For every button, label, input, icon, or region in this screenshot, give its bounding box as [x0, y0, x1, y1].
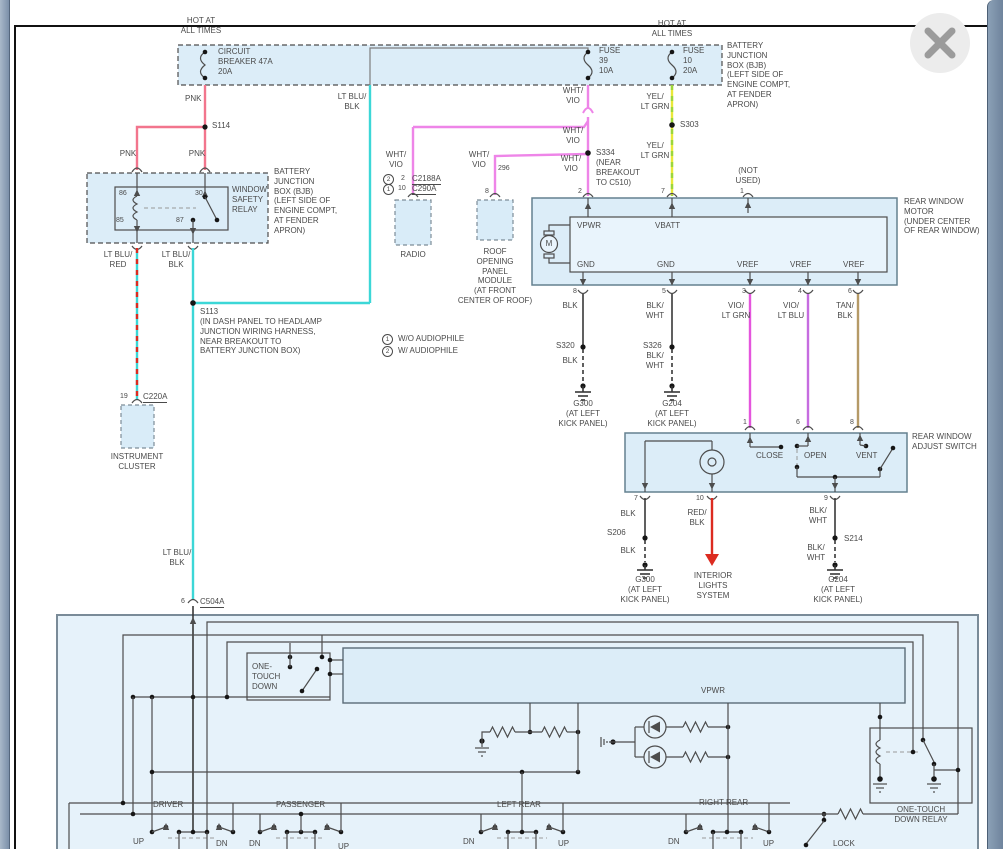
- label-vpwr-module: VPWR: [701, 686, 725, 696]
- label-pin-6: 6: [181, 598, 185, 607]
- label-circuit-breaker: CIRCUIT BREAKER 47A 20A: [218, 47, 273, 76]
- label-lt-blu-blk-2: LT BLU/ BLK: [338, 92, 367, 112]
- label-switch-pin-6: 6: [796, 419, 800, 428]
- label-passenger-up: UP: [338, 842, 349, 849]
- label-s206: S206: [607, 528, 626, 538]
- label-c290a: C290A: [412, 184, 436, 195]
- label-vio-lt-grn: VIO/ LT GRN: [722, 301, 751, 321]
- label-pin-19: 19: [120, 393, 128, 402]
- label-interior-lights-system: INTERIOR LIGHTS SYSTEM: [694, 571, 732, 600]
- label-s113: S113: [200, 307, 218, 317]
- label-s303: S303: [680, 120, 699, 130]
- label-vref-2: VREF: [790, 260, 811, 270]
- label-vent-position: VENT: [856, 451, 877, 461]
- label-hot-at-all-times-2: HOT AT ALL TIMES: [652, 19, 692, 39]
- label-red-blk: RED/ BLK: [687, 508, 706, 528]
- label-s326: S326: [643, 341, 662, 351]
- label-g300-a: G300 (AT LEFT KICK PANEL): [558, 399, 607, 428]
- label-bjb-top: BATTERY JUNCTION BOX (BJB) (LEFT SIDE OF…: [727, 41, 790, 109]
- roof-module-connector: [477, 200, 513, 240]
- label-window-safety-relay: WINDOW SAFETY RELAY: [232, 185, 267, 214]
- label-wht-vio-1: WHT/ VIO: [563, 86, 583, 106]
- label-gnd-1: GND: [577, 260, 595, 270]
- label-right-rear: RIGHT REAR: [699, 798, 748, 808]
- label-right-rear-up: UP: [763, 839, 774, 849]
- instrument-cluster-connector: [121, 405, 154, 448]
- note-circle-wo-audiophile: 1: [382, 334, 393, 345]
- label-c504a: C504A: [200, 597, 224, 608]
- label-vref-3: VREF: [843, 260, 864, 270]
- radio-connector: [395, 200, 431, 245]
- label-wht-vio-5: WHT/ VIO: [469, 150, 489, 170]
- label-radio-pin-2: 2: [401, 175, 405, 184]
- label-tan-blk: TAN/ BLK: [836, 301, 854, 321]
- label-blk-wht-3: BLK/ WHT: [809, 506, 827, 526]
- label-lock: LOCK: [833, 839, 855, 849]
- label-motor-pin-3b: 3: [742, 288, 746, 297]
- close-icon: [910, 13, 970, 73]
- label-wire-296: 296: [498, 165, 510, 174]
- label-relay-pin-85: 85: [116, 217, 124, 226]
- label-radio: RADIO: [400, 250, 425, 260]
- label-gnd-2: GND: [657, 260, 675, 270]
- label-wht-vio-2: WHT/ VIO: [563, 126, 583, 146]
- label-driver: DRIVER: [153, 800, 183, 810]
- label-g300-b: G300 (AT LEFT KICK PANEL): [620, 575, 669, 604]
- label-motor-pin-5b: 5: [662, 288, 666, 297]
- label-roof-module: ROOF OPENING PANEL MODULE (AT FRONT CENT…: [458, 247, 532, 306]
- label-instrument-cluster: INSTRUMENT CLUSTER: [111, 452, 163, 472]
- label-rear-window-adjust-switch: REAR WINDOW ADJUST SWITCH: [912, 432, 977, 452]
- splice-s334: [585, 150, 591, 156]
- label-s114: S114: [212, 121, 230, 131]
- label-blk-3: BLK: [620, 509, 635, 519]
- label-wht-vio-3: WHT/ VIO: [561, 154, 581, 174]
- label-g204-a: G204 (AT LEFT KICK PANEL): [647, 399, 696, 428]
- label-lt-blu-blk-1: LT BLU/ BLK: [162, 250, 191, 270]
- label-roof-pin-8: 8: [485, 188, 489, 197]
- label-blk-wht-2: BLK/ WHT: [646, 351, 664, 371]
- splice-s303: [669, 122, 675, 128]
- label-rear-window-motor: REAR WINDOW MOTOR (UNDER CENTER OF REAR …: [904, 197, 980, 236]
- bottom-module-box: [57, 606, 978, 849]
- label-s214: S214: [844, 534, 863, 544]
- wiring-diagram-viewer: { "window": { "close_icon": "✕" }, "colo…: [0, 0, 1003, 849]
- note-circle-1: 1: [383, 184, 394, 195]
- rear-window-motor: [532, 194, 897, 294]
- label-yel-lt-grn-1: YEL/ LT GRN: [641, 92, 670, 112]
- right-scrollbar[interactable]: [987, 0, 1003, 849]
- label-passenger-dn: DN: [249, 839, 261, 849]
- label-hot-at-all-times-1: HOT AT ALL TIMES: [181, 16, 221, 36]
- label-relay-pin-87: 87: [176, 217, 184, 226]
- label-wht-vio-4: WHT/ VIO: [386, 150, 406, 170]
- rear-window-adjust-switch: [625, 433, 907, 500]
- label-blk-1: BLK: [562, 301, 577, 311]
- label-vref-1: VREF: [737, 260, 758, 270]
- label-s334-desc: (NEAR BREAKOUT TO C510): [596, 158, 640, 187]
- close-button[interactable]: [910, 13, 970, 73]
- label-vbatt: VBATT: [655, 221, 680, 231]
- label-one-touch-down: ONE- TOUCH DOWN: [252, 662, 280, 691]
- label-blk-wht-4: BLK/ WHT: [807, 543, 825, 563]
- label-blk-wht-1: BLK/ WHT: [646, 301, 664, 321]
- label-pnk-3: PNK: [189, 149, 205, 159]
- label-bjb-relay: BATTERY JUNCTION BOX (BJB) (LEFT SIDE OF…: [274, 167, 337, 235]
- label-wo-audiophile: W/O AUDIOPHILE: [398, 334, 464, 344]
- label-switch-pin-7: 7: [634, 495, 638, 504]
- window-left-edge: [0, 0, 10, 849]
- label-blk-2: BLK: [562, 356, 577, 366]
- label-g204-b: G204 (AT LEFT KICK PANEL): [813, 575, 862, 604]
- label-s320: S320: [556, 341, 575, 351]
- label-motor-pin-7: 7: [661, 188, 665, 197]
- label-lt-blu-blk-3: LT BLU/ BLK: [163, 548, 192, 568]
- label-yel-lt-grn-2: YEL/ LT GRN: [641, 141, 670, 161]
- label-vpwr: VPWR: [577, 221, 601, 231]
- label-close-position: CLOSE: [756, 451, 783, 461]
- label-left-rear: LEFT REAR: [497, 800, 541, 810]
- label-open-position: OPEN: [804, 451, 827, 461]
- label-fuse-10: FUSE 10 20A: [683, 46, 704, 75]
- label-passenger: PASSENGER: [276, 800, 325, 810]
- label-pnk-1: PNK: [185, 94, 201, 104]
- label-pnk-2: PNK: [120, 149, 136, 159]
- label-driver-dn: DN: [216, 839, 228, 849]
- label-fuse-39: FUSE 39 10A: [599, 46, 620, 75]
- label-motor-pin-1: 1: [740, 188, 744, 197]
- ground-wires-below-motor: [575, 294, 680, 400]
- label-c220a: C220A: [143, 392, 167, 403]
- label-right-rear-dn: DN: [668, 837, 680, 847]
- label-lt-blu-red: LT BLU/ RED: [104, 250, 133, 270]
- label-relay-pin-86: 86: [119, 190, 127, 199]
- label-motor-pin-8b: 8: [573, 288, 577, 297]
- label-motor-m: M: [546, 239, 553, 249]
- splice-s114: [202, 124, 207, 129]
- label-switch-pin-1: 1: [743, 419, 747, 428]
- label-left-rear-up: UP: [558, 839, 569, 849]
- label-s334: S334: [596, 148, 615, 158]
- label-w-audiophile: W/ AUDIOPHILE: [398, 346, 458, 356]
- label-driver-up: UP: [133, 837, 144, 847]
- label-switch-pin-8: 8: [850, 419, 854, 428]
- splice-s113: [190, 300, 196, 306]
- label-switch-pin-10: 10: [696, 495, 704, 504]
- note-circle-w-audiophile: 2: [382, 346, 393, 357]
- label-s113-desc: (IN DASH PANEL TO HEADLAMP JUNCTION WIRI…: [200, 317, 322, 356]
- label-motor-pin-4b: 4: [798, 288, 802, 297]
- label-not-used: (NOT USED): [736, 166, 761, 186]
- label-one-touch-down-relay: ONE-TOUCH DOWN RELAY: [894, 805, 947, 825]
- label-relay-pin-30: 30: [195, 190, 203, 199]
- label-radio-pin-10: 10: [398, 185, 406, 194]
- label-motor-pin-2: 2: [578, 188, 582, 197]
- interior-lights-arrow: [705, 554, 719, 566]
- label-blk-4: BLK: [620, 546, 635, 556]
- label-left-rear-dn: DN: [463, 837, 475, 847]
- label-switch-pin-9: 9: [824, 495, 828, 504]
- label-motor-pin-6b: 6: [848, 288, 852, 297]
- label-vio-lt-blu: VIO/ LT BLU: [778, 301, 804, 321]
